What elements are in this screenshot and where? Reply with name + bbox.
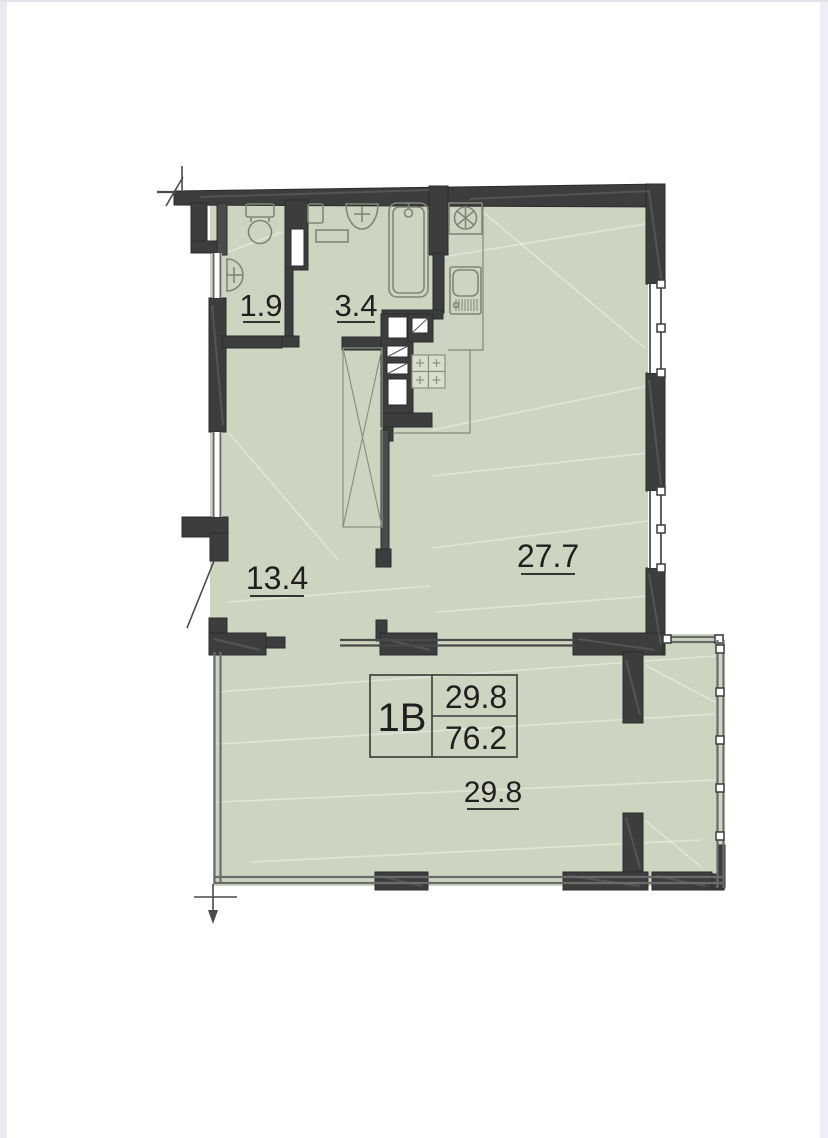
floor-plan: 1B 29.8 76.2 1.9 3.4 13.4 27.7 29.8 (0, 0, 828, 1138)
window-left-1 (212, 253, 222, 298)
wall-hall-partition-foot (376, 549, 391, 567)
living-area-value: 29.8 (445, 679, 507, 715)
shaft-1 (388, 317, 407, 338)
bathroom-area-label: 3.4 (334, 288, 377, 323)
shaft-5 (388, 379, 407, 405)
kitchen-living-area-label: 27.7 (517, 538, 579, 574)
page-edge-top (0, 0, 828, 2)
hallway-area-label: 13.4 (246, 560, 308, 596)
total-area-value: 76.2 (445, 720, 507, 756)
wall-wc-bath-foot (280, 336, 299, 347)
wall-wc-bottom (222, 336, 282, 348)
floor-plan-page: 1B 29.8 76.2 1.9 3.4 13.4 27.7 29.8 (0, 0, 828, 1138)
shaft-wc-bath (291, 229, 304, 266)
page-edge-right (820, 0, 828, 1138)
unit-code: 1B (378, 696, 427, 740)
wc-area-label: 1.9 (239, 288, 282, 323)
wall-wc-bath-stem (285, 268, 293, 340)
wall-wc-left (217, 203, 227, 255)
stove (412, 355, 445, 388)
bedroom-area-label: 29.8 (464, 776, 522, 809)
wall-bath-kitchen-stem (433, 253, 444, 313)
window-right-2 (648, 487, 665, 572)
wall-left-lug-v (210, 533, 228, 561)
bedroom-floor (213, 634, 724, 886)
window-left-2 (212, 432, 222, 517)
wall-boundary-a-tab (266, 637, 285, 648)
wall-kitchen-bottom (381, 413, 432, 427)
page-edge-left (0, 0, 7, 1138)
window-right-1 (648, 280, 665, 377)
wall-bath-kitchen-top (429, 186, 448, 255)
